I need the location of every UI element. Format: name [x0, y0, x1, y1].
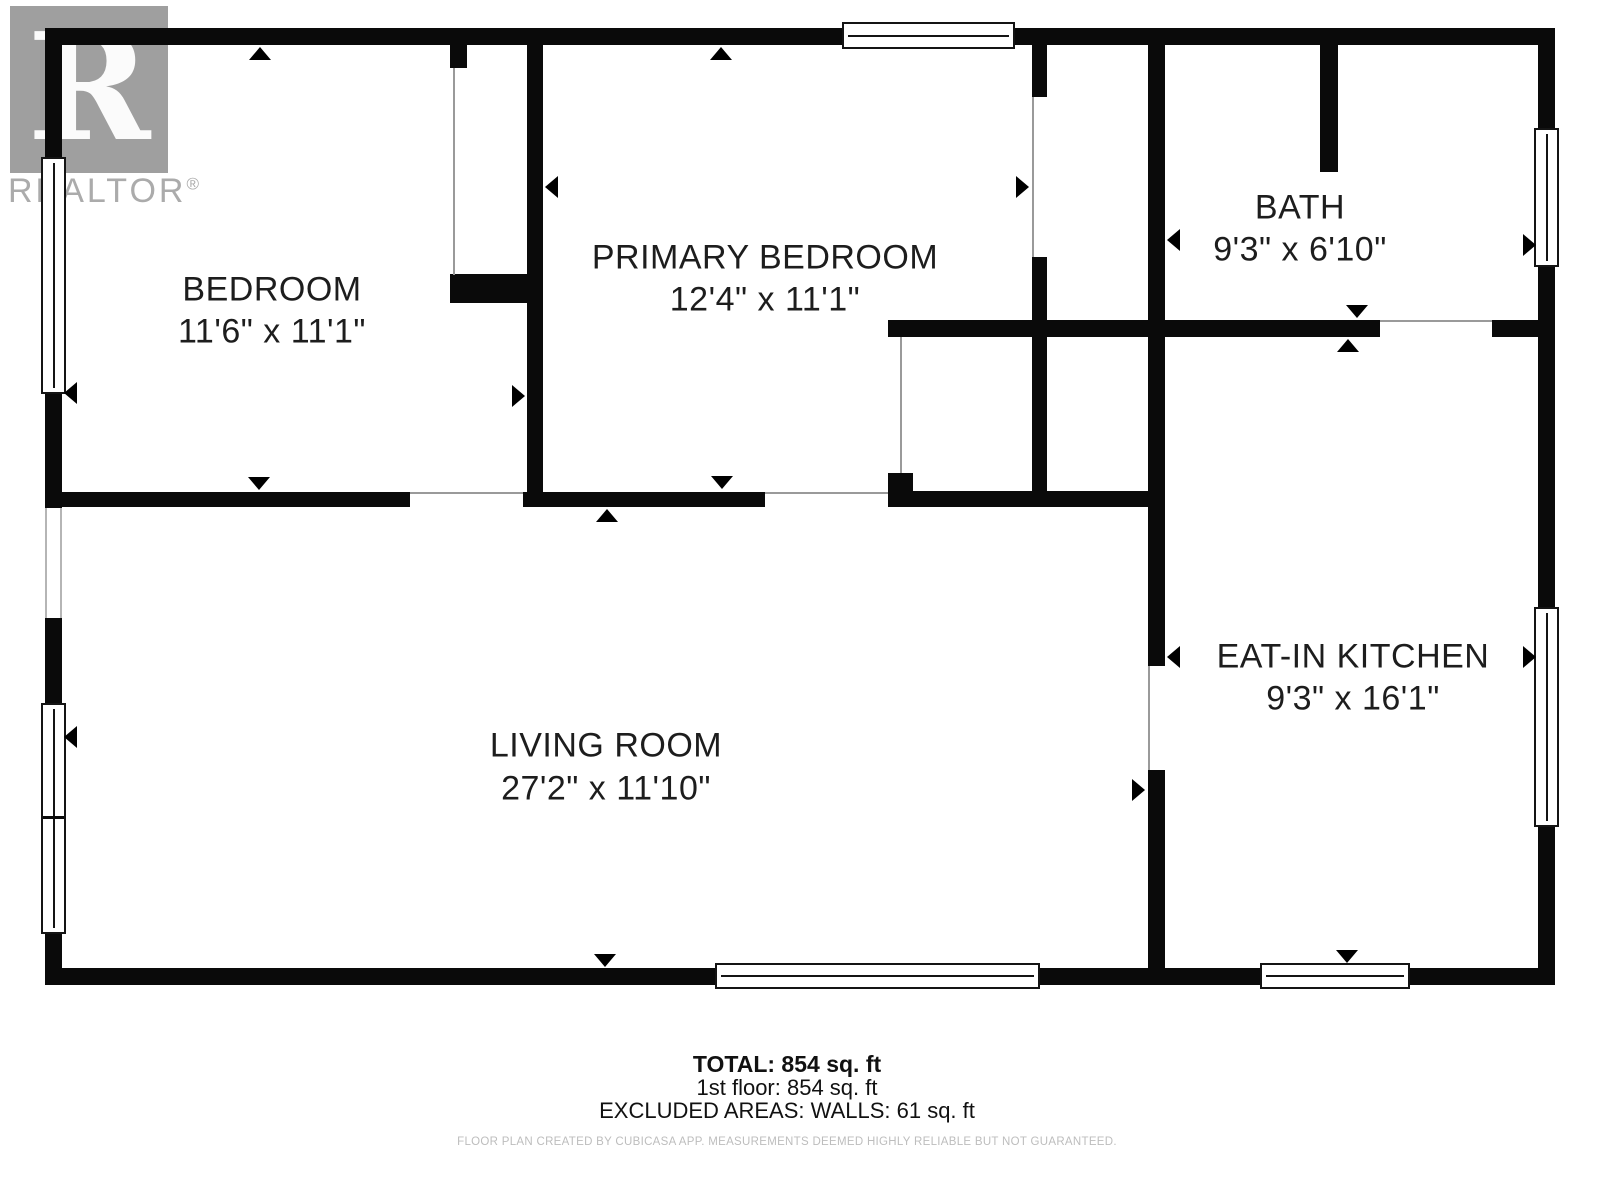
total-area: TOTAL: 854 sq. ft	[599, 1052, 975, 1076]
door-opening-line	[1380, 320, 1492, 322]
window	[1260, 963, 1410, 989]
door-marker	[1337, 339, 1359, 352]
door-marker	[710, 47, 732, 60]
registered-symbol: ®	[186, 175, 199, 194]
wall-segment	[1538, 263, 1555, 609]
door-marker	[1167, 646, 1180, 668]
wall-segment	[1492, 320, 1538, 337]
floor-area: 1st floor: 854 sq. ft	[599, 1076, 975, 1099]
wall-segment	[1148, 45, 1165, 666]
door-marker	[248, 477, 270, 490]
wall-segment	[45, 28, 842, 45]
room-dims-living-room: 27'2" x 11'10"	[501, 770, 711, 809]
room-dims-bedroom: 11'6" x 11'1"	[178, 313, 366, 352]
room-label-eat-in-kitchen: EAT-IN KITCHEN	[1217, 638, 1490, 677]
door-leaf-line	[1148, 666, 1150, 770]
wall-segment	[523, 492, 765, 507]
door-leaf-line	[453, 68, 455, 275]
door-marker	[1132, 779, 1145, 801]
window	[715, 963, 1040, 989]
window	[842, 22, 1015, 49]
wall-opening	[45, 508, 62, 618]
room-label-bath: BATH	[1255, 189, 1345, 228]
disclaimer-text: FLOOR PLAN CREATED BY CUBICASA APP. MEAS…	[457, 1136, 1117, 1148]
door-marker	[249, 47, 271, 60]
wall-segment	[45, 28, 62, 160]
wall-segment	[888, 320, 1380, 337]
door-marker	[596, 509, 618, 522]
wall-segment	[1032, 257, 1047, 507]
wall-segment	[1148, 770, 1165, 970]
wall-segment	[1040, 968, 1260, 985]
room-label-bedroom: BEDROOM	[182, 271, 361, 310]
window	[1534, 128, 1559, 267]
wall-segment	[45, 968, 715, 985]
wall-segment	[450, 274, 543, 303]
wall-segment	[1538, 28, 1555, 132]
wall-segment	[45, 618, 62, 705]
door-opening-line	[765, 492, 888, 494]
door-marker	[512, 385, 525, 407]
realtor-wordmark-text: REALTOR	[8, 172, 186, 210]
door-marker	[64, 382, 77, 404]
door-marker	[545, 176, 558, 198]
door-leaf-line	[1032, 97, 1034, 257]
room-dims-eat-in-kitchen: 9'3" x 16'1"	[1266, 680, 1440, 719]
room-label-primary-bedroom: PRIMARY BEDROOM	[592, 239, 938, 278]
door-leaf-line	[900, 337, 902, 473]
realtor-wordmark: REALTOR®	[8, 172, 199, 211]
room-dims-bath: 9'3" x 6'10"	[1213, 231, 1387, 270]
wall-segment	[45, 392, 62, 508]
door-marker	[64, 726, 77, 748]
wall-segment	[1410, 968, 1555, 985]
wall-segment	[1015, 28, 1555, 45]
door-opening-line	[410, 492, 523, 494]
window-divider	[43, 816, 64, 819]
excluded-areas: EXCLUDED AREAS: WALLS: 61 sq. ft	[599, 1099, 975, 1122]
door-marker	[1346, 305, 1368, 318]
wall-segment	[1320, 45, 1338, 172]
door-marker	[1016, 176, 1029, 198]
wall-segment	[1538, 825, 1555, 985]
window	[41, 157, 66, 394]
room-dims-primary-bedroom: 12'4" x 11'1"	[670, 281, 860, 320]
room-label-living-room: LIVING ROOM	[490, 727, 722, 766]
wall-segment	[450, 45, 467, 68]
wall-segment	[888, 491, 1165, 507]
wall-segment	[1032, 45, 1047, 97]
wall-segment	[62, 492, 410, 507]
door-marker	[1523, 646, 1536, 668]
door-marker	[1336, 950, 1358, 963]
window	[1534, 607, 1559, 827]
door-marker	[594, 954, 616, 967]
door-marker	[1167, 229, 1180, 251]
wall-segment	[888, 473, 913, 491]
door-marker	[1523, 234, 1536, 256]
door-marker	[711, 476, 733, 489]
area-summary: TOTAL: 854 sq. ft 1st floor: 854 sq. ft …	[599, 1052, 975, 1122]
